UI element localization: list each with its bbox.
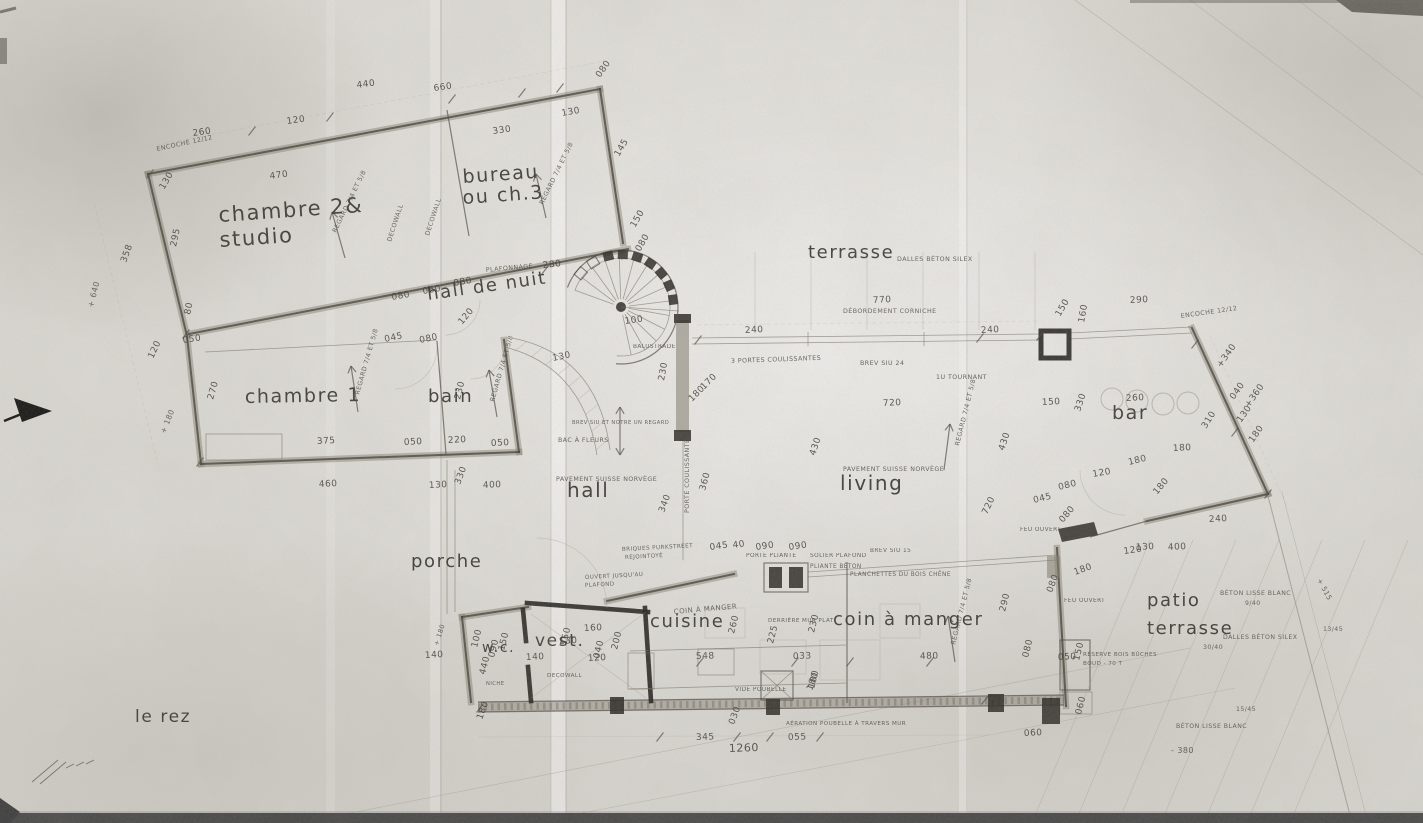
paper-noise-overlay: [0, 0, 1423, 823]
floor-plan-scan: encoche 12/12regard 7/4 et 5/8regard 7/4…: [0, 0, 1423, 823]
